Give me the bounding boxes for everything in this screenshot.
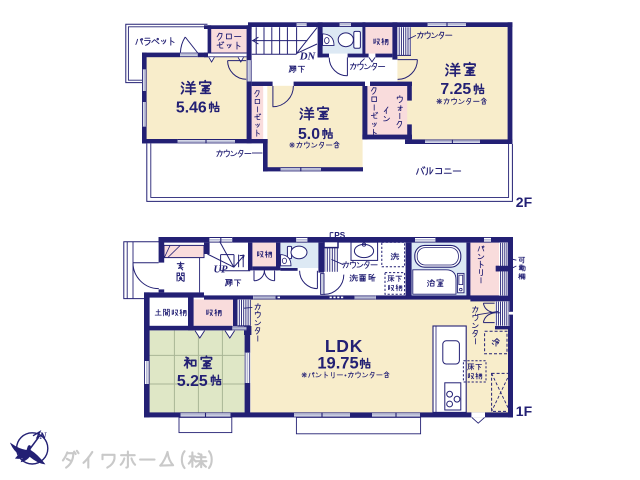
svg-text:LDK: LDK [325,336,363,356]
svg-text:7.25: 7.25 [440,81,471,98]
svg-text:2F: 2F [516,194,533,210]
svg-text:DN: DN [299,51,317,63]
svg-text:N: N [39,432,48,442]
svg-text:5.0: 5.0 [298,126,320,143]
svg-text:UP: UP [214,265,229,276]
svg-text:19.75: 19.75 [317,355,358,373]
svg-text:5.46: 5.46 [176,100,207,117]
svg-text:PS: PS [334,231,345,240]
svg-text:1F: 1F [516,403,533,419]
svg-text:5.25: 5.25 [177,373,208,390]
